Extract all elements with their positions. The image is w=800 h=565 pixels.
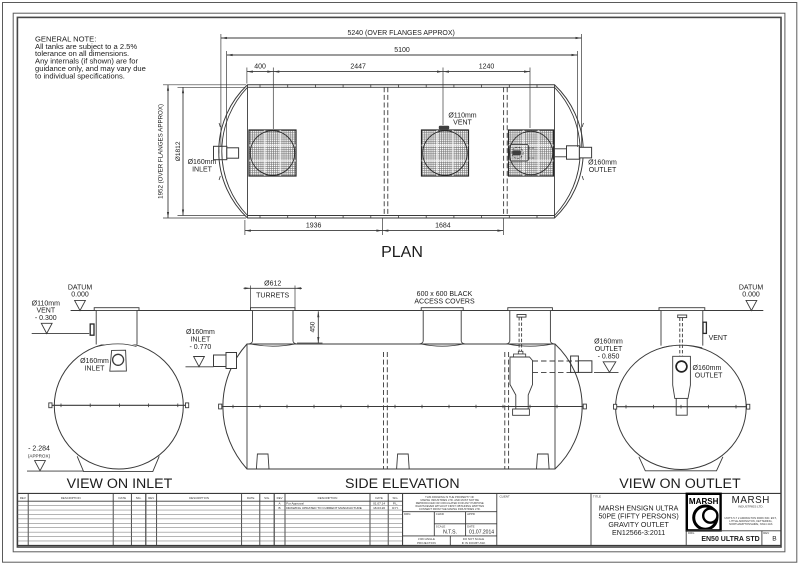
svg-text:PLAN: PLAN [381,244,423,261]
svg-text:CLIENT: CLIENT [500,495,511,499]
svg-text:EN50 ULTRA STD: EN50 ULTRA STD [701,536,759,543]
svg-text:INLET: INLET [190,336,211,343]
svg-text:450: 450 [310,321,317,332]
svg-text:Ø612: Ø612 [264,280,281,287]
svg-text:SIG.: SIG. [136,496,142,500]
svg-text:DATE: DATE [467,524,475,528]
svg-text:R.H.: R.H. [392,506,398,510]
svg-text:DATE: DATE [247,496,255,500]
svg-text:VIEW ON INLET: VIEW ON INLET [67,476,173,492]
svg-text:VENT: VENT [36,308,55,315]
svg-text:Ø160mm: Ø160mm [588,160,617,167]
svg-text:TITLE: TITLE [593,495,601,499]
svg-text:400: 400 [254,63,266,70]
svg-text:INDUSTRIES LTD.: INDUSTRIES LTD. [738,505,763,509]
svg-text:REV: REV [148,496,154,500]
svg-text:B: B [772,536,777,543]
svg-text:- 0.770: - 0.770 [190,344,212,351]
svg-text:- 2.284: - 2.284 [28,446,50,453]
svg-text:SIG.: SIG. [264,496,270,500]
svg-text:18.03.20: 18.03.20 [373,506,385,510]
svg-text:5240 (OVER FLANGES APPROX): 5240 (OVER FLANGES APPROX) [348,30,455,37]
svg-text:B: B [279,506,281,510]
svg-text:INLET: INLET [192,167,213,174]
svg-text:01.07.14: 01.07.14 [373,502,385,506]
svg-text:VENT: VENT [453,119,472,126]
svg-text:01.07.2014: 01.07.2014 [469,530,494,536]
svg-text:1240: 1240 [479,63,495,70]
svg-text:CONSENT FROM THE MARSH INDUSTR: CONSENT FROM THE MARSH INDUSTRIES LTD. [419,507,481,511]
svg-text:(APPROX): (APPROX) [28,453,51,458]
svg-text:For Approval: For Approval [286,502,304,506]
svg-text:TURRETS: TURRETS [256,293,289,300]
svg-text:OUTLET: OUTLET [589,167,617,174]
svg-text:600 x 600 BLACK: 600 x 600 BLACK [417,291,473,298]
svg-text:DESCRIPTION: DESCRIPTION [61,496,81,500]
svg-text:CHKD: CHKD [436,512,444,516]
svg-text:0.000: 0.000 [742,292,760,299]
svg-text:to individual specifications.: to individual specifications. [35,71,125,80]
svg-text:SIG.: SIG. [393,496,399,500]
svg-text:2447: 2447 [350,63,366,70]
svg-text:IF IN DOUBT ASK: IF IN DOUBT ASK [462,541,486,545]
svg-text:PROJECTION: PROJECTION [417,541,436,545]
svg-text:N.T.S.: N.T.S. [443,530,457,536]
svg-text:DESCRIPTION: DESCRIPTION [189,496,209,500]
svg-text:VENT: VENT [709,335,728,342]
svg-text:Ø160mm: Ø160mm [80,358,109,365]
svg-text:Ø160mm: Ø160mm [594,338,623,345]
svg-text:DATE: DATE [119,496,127,500]
svg-text:VIEW ON OUTLET: VIEW ON OUTLET [619,476,741,492]
svg-text:DATUM: DATUM [739,284,764,291]
svg-text:OUTLET: OUTLET [695,373,723,380]
svg-text:OUTLET: OUTLET [595,346,623,353]
svg-text:NORTHAMPTONSHIRE, NN14 4AS: NORTHAMPTONSHIRE, NN14 4AS [729,522,773,526]
svg-text:0.000: 0.000 [71,292,89,299]
svg-text:DRAWING UPDATED TO CURRENT MAN: DRAWING UPDATED TO CURRENT MANUFACTURE [286,506,362,510]
svg-text:MARSH ENSIGN ULTRA: MARSH ENSIGN ULTRA [599,504,679,512]
svg-text:EN12566-3:2011: EN12566-3:2011 [612,529,665,537]
svg-text:DO NOT SCALE: DO NOT SCALE [463,537,485,541]
svg-text:1952 (OVER FLANGES APPROX): 1952 (OVER FLANGES APPROX) [157,104,164,199]
svg-text:- 0.850: - 0.850 [598,353,620,360]
svg-text:50PE (FIFTY PERSONS): 50PE (FIFTY PERSONS) [598,513,678,521]
svg-text:Ø1812: Ø1812 [175,141,182,161]
svg-text:3 RD ANGLE: 3 RD ANGLE [418,537,435,541]
svg-text:DATUM: DATUM [68,284,93,291]
svg-text:ACCESS COVERS: ACCESS COVERS [414,299,475,306]
svg-text:P.L.: P.L. [393,502,398,506]
svg-text:REV: REV [277,496,283,500]
svg-text:DRN.: DRN. [404,512,411,516]
svg-text:MARSH: MARSH [689,497,719,506]
svg-text:DRG: DRG [688,531,695,535]
svg-text:SIDE ELEVATION: SIDE ELEVATION [345,476,460,492]
svg-text:Ø160mm: Ø160mm [186,329,215,336]
svg-text:1684: 1684 [435,222,451,229]
svg-text:SCALE: SCALE [436,524,446,528]
svg-text:1936: 1936 [306,222,322,229]
svg-text:5100: 5100 [394,47,410,54]
svg-text:- 0.300: - 0.300 [35,315,57,322]
svg-text:Ø160mm: Ø160mm [693,365,722,372]
svg-text:Ø160mm: Ø160mm [188,159,217,166]
svg-text:DATE: DATE [375,496,383,500]
svg-text:REV: REV [763,531,769,535]
svg-text:GRAVITY OUTLET: GRAVITY OUTLET [608,521,669,529]
svg-text:REV: REV [20,496,26,500]
svg-text:Ø110mm: Ø110mm [448,112,476,119]
svg-text:Ø110mm: Ø110mm [32,300,60,307]
svg-text:INLET: INLET [85,366,106,373]
svg-text:APPD: APPD [467,512,475,516]
svg-text:DESCRIPTION: DESCRIPTION [318,496,338,500]
